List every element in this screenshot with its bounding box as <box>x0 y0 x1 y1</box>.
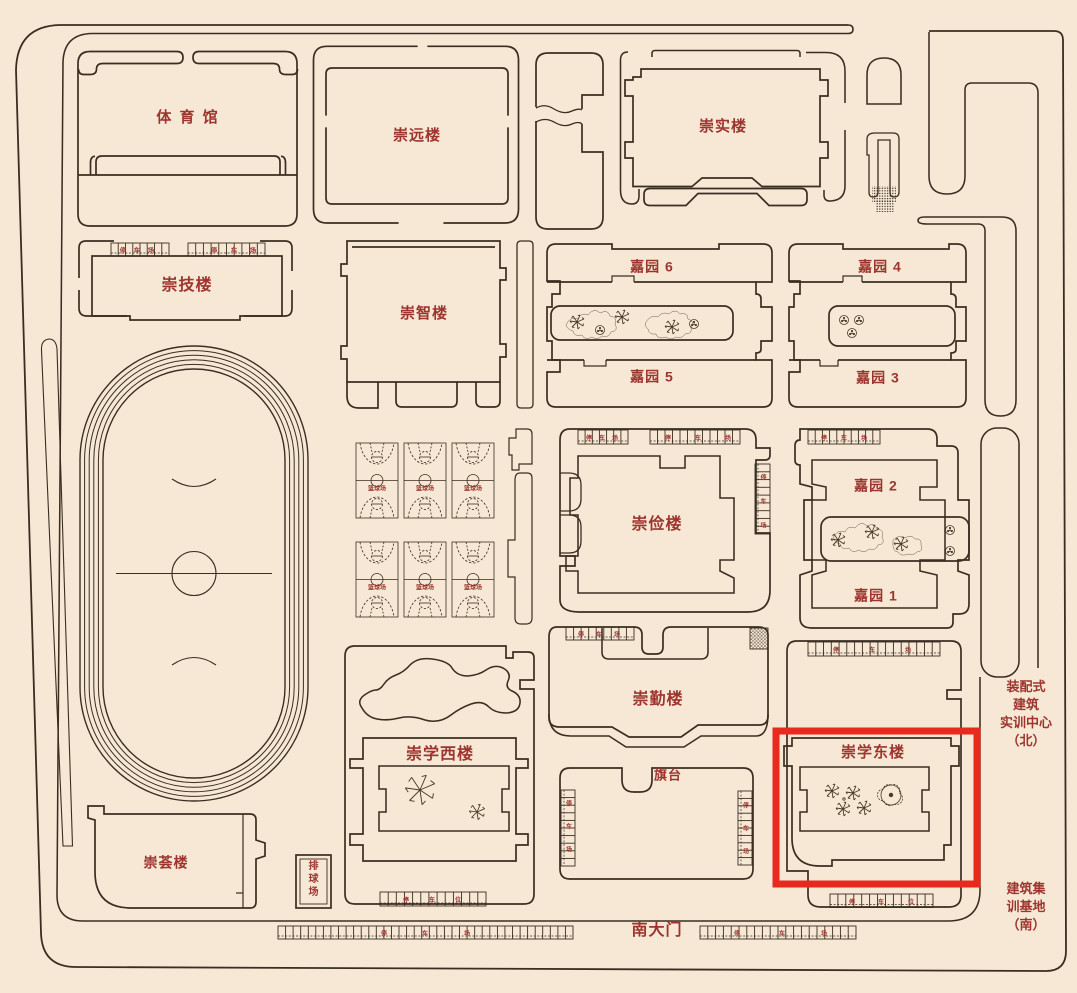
svg-text:（南）: （南） <box>1006 917 1045 932</box>
svg-text:旗台: 旗台 <box>654 767 682 782</box>
svg-text:停: 停 <box>586 434 592 442</box>
svg-text:车: 车 <box>422 930 428 938</box>
svg-text:车: 车 <box>760 498 766 506</box>
svg-text:场: 场 <box>250 246 257 255</box>
svg-text:场: 场 <box>464 930 470 938</box>
svg-text:嘉园 1: 嘉园 1 <box>853 588 898 604</box>
svg-text:（北）: （北） <box>1006 733 1045 748</box>
svg-text:排: 排 <box>309 859 319 872</box>
svg-text:场: 场 <box>760 522 766 530</box>
svg-text:停: 停 <box>665 434 671 442</box>
svg-text:崇智楼: 崇智楼 <box>400 304 448 322</box>
svg-text:停: 停 <box>734 930 740 938</box>
svg-text:建筑: 建筑 <box>1013 697 1039 712</box>
svg-text:南大门: 南大门 <box>631 920 682 939</box>
svg-text:崇学东楼: 崇学东楼 <box>841 743 905 761</box>
svg-text:停: 停 <box>578 631 584 639</box>
svg-text:车: 车 <box>841 434 847 442</box>
svg-text:场: 场 <box>148 246 155 255</box>
svg-text:体 育 馆: 体 育 馆 <box>156 108 219 126</box>
svg-text:停: 停 <box>566 800 572 808</box>
svg-text:车: 车 <box>869 646 875 654</box>
svg-text:实训中心: 实训中心 <box>1000 715 1052 730</box>
svg-text:停: 停 <box>120 246 127 255</box>
svg-text:停: 停 <box>849 898 855 906</box>
svg-text:车: 车 <box>779 930 785 938</box>
svg-text:嘉园 6: 嘉园 6 <box>629 259 674 275</box>
svg-text:场: 场 <box>821 930 827 938</box>
svg-text:球: 球 <box>309 872 320 885</box>
svg-text:嘉园 4: 嘉园 4 <box>857 259 902 275</box>
svg-text:训基地: 训基地 <box>1006 899 1045 914</box>
svg-text:车: 车 <box>599 434 605 442</box>
svg-text:停: 停 <box>211 246 218 255</box>
svg-text:场: 场 <box>725 434 731 442</box>
svg-text:停: 停 <box>381 930 387 938</box>
svg-text:停: 停 <box>760 474 766 482</box>
svg-text:场: 场 <box>743 848 749 856</box>
svg-text:车: 车 <box>566 823 572 831</box>
svg-text:车: 车 <box>429 896 435 904</box>
svg-text:崇技楼: 崇技楼 <box>161 275 212 294</box>
svg-text:车: 车 <box>695 434 701 442</box>
svg-text:场: 场 <box>614 631 620 639</box>
svg-text:车: 车 <box>134 246 141 255</box>
svg-text:崇勤楼: 崇勤楼 <box>632 689 683 708</box>
svg-text:建筑集: 建筑集 <box>1006 881 1046 896</box>
svg-text:装配式: 装配式 <box>1005 679 1045 694</box>
svg-text:场: 场 <box>612 434 618 442</box>
svg-text:场: 场 <box>309 885 319 898</box>
svg-text:停: 停 <box>743 802 749 810</box>
svg-text:停: 停 <box>403 896 409 904</box>
svg-text:崇学西楼: 崇学西楼 <box>406 744 474 763</box>
svg-text:场: 场 <box>905 646 911 654</box>
svg-text:嘉园 5: 嘉园 5 <box>629 369 674 385</box>
svg-text:车: 车 <box>878 898 884 906</box>
svg-text:崇远楼: 崇远楼 <box>393 126 441 144</box>
svg-text:车: 车 <box>231 246 238 255</box>
svg-text:车: 车 <box>743 825 749 833</box>
svg-text:位: 位 <box>455 896 461 904</box>
svg-text:嘉园 2: 嘉园 2 <box>853 478 898 494</box>
svg-text:车: 车 <box>596 631 602 639</box>
svg-text:崇实楼: 崇实楼 <box>699 117 747 135</box>
svg-text:停: 停 <box>833 646 839 654</box>
svg-text:场: 场 <box>566 846 572 854</box>
svg-text:崇俭楼: 崇俭楼 <box>631 514 682 533</box>
svg-text:嘉园 3: 嘉园 3 <box>855 370 900 386</box>
svg-text:崇荟楼: 崇荟楼 <box>144 855 189 871</box>
svg-text:场: 场 <box>861 434 867 442</box>
svg-text:位: 位 <box>908 898 914 906</box>
svg-text:停: 停 <box>821 434 827 442</box>
